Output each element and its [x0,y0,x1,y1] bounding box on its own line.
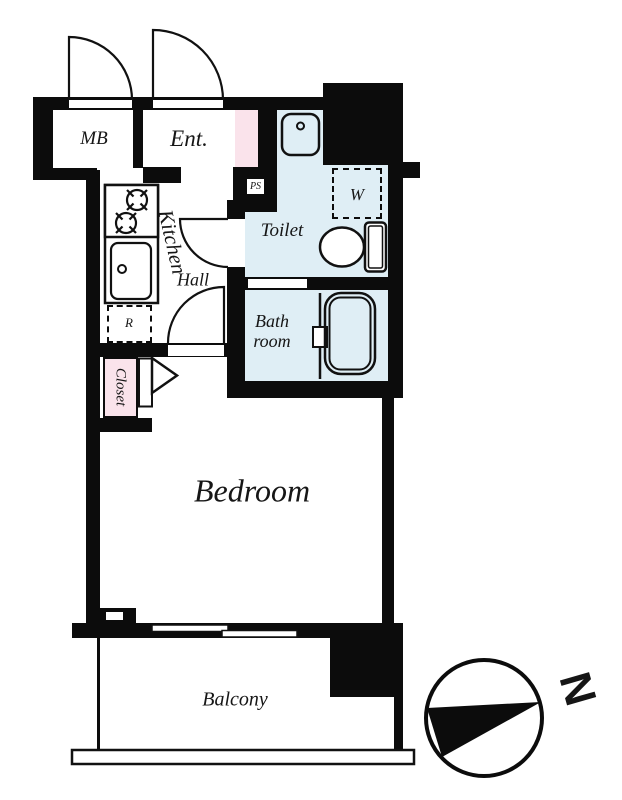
door-opening [227,219,245,267]
wall-segment [143,167,181,183]
compass-needle [427,702,541,757]
wall-segment [86,170,100,638]
door-opening [69,100,132,108]
room-label-entrance: Ent. [170,126,208,152]
bifold-door-icon [152,358,177,393]
balcony-side-wall [394,697,403,750]
meter-box [106,612,123,620]
wall-segment [258,108,277,167]
room-label-hall: Hall [177,270,209,291]
compass-north-label: N [549,667,606,711]
balcony-rail [72,750,414,764]
wall-segment [133,108,143,168]
balcony-side-wall [97,638,100,750]
kitchen-counter [105,185,158,303]
pillar-block [330,633,403,697]
sliding-door-opening [248,279,307,288]
wall-segment [382,395,394,635]
bifold-door-icon [139,359,152,407]
door-opening [168,345,224,356]
gas-stove-icon [105,185,158,237]
wall-segment [401,162,420,178]
gas-stove-icon [116,190,147,233]
wash-basin-alcove [277,110,323,165]
wall-segment [86,418,152,432]
room-label-closet: Closet [112,368,129,406]
compass-icon [426,660,542,776]
kitchen-sink-icon [118,265,126,273]
wall-segment [227,381,403,398]
room-label-bedroom: Bedroom [194,473,310,510]
room-label-balcony: Balcony [202,689,268,712]
door-swing-icon [168,287,224,343]
washing-machine-space [332,168,382,219]
room-label-mb: MB [80,128,107,150]
refrigerator-space [107,305,152,343]
room-label-bathroom: Bath room [240,311,304,351]
door-swing-icon [69,37,132,100]
floor-plan: MB Ent. PS W Toilet Bath room Kitchen Ha… [0,0,622,800]
room-label-toilet: Toilet [261,220,304,242]
room-label-ps: PS [246,178,265,195]
door-opening [153,100,223,108]
entrance-pink-strip [235,108,258,167]
door-swing-icon [153,30,223,100]
kitchen-sink-icon [111,243,151,299]
room-label-kitchen: Kitchen [152,207,191,276]
pillar-block [323,83,403,165]
